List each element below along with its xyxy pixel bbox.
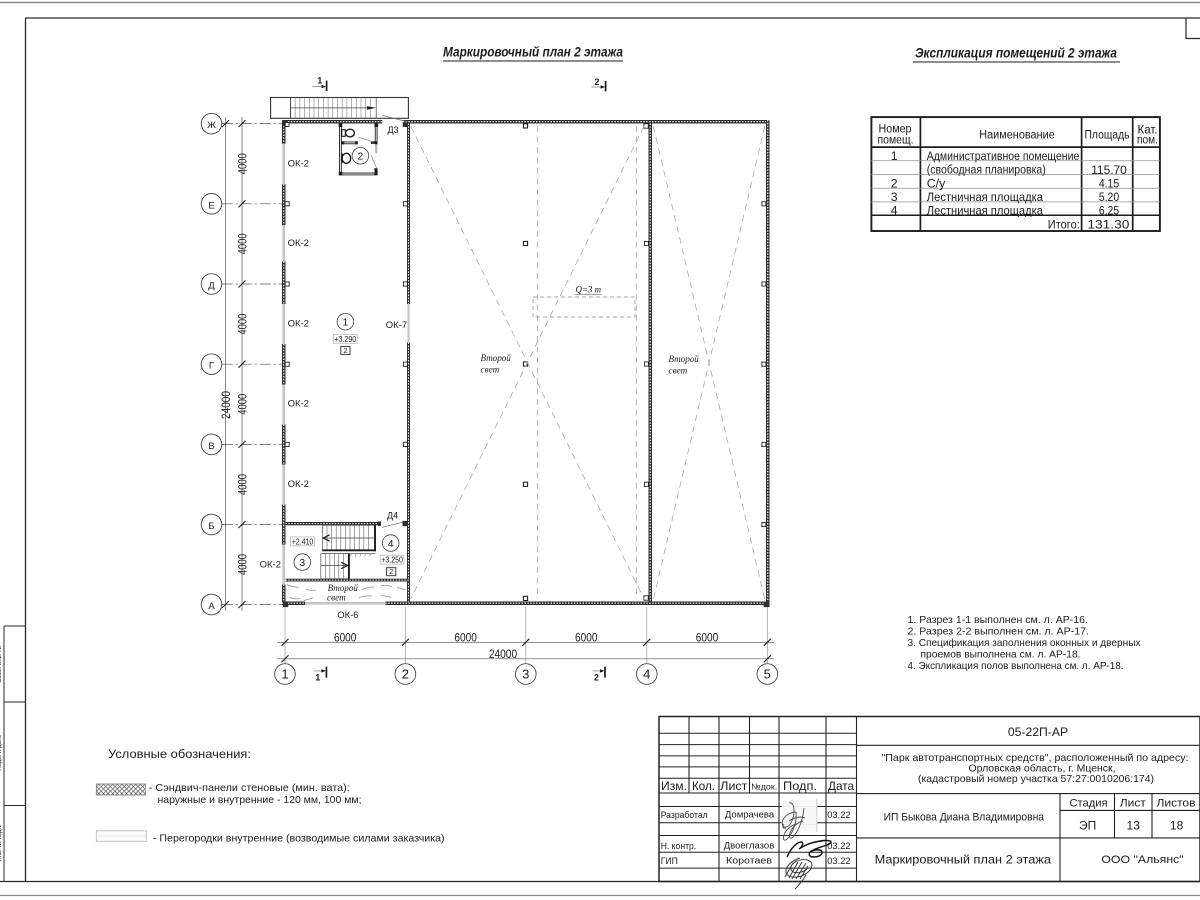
svg-text:ОК-6: ОК-6 — [337, 610, 358, 621]
svg-text:Лист: Лист — [1120, 798, 1146, 810]
svg-text:Площадь: Площадь — [1085, 128, 1130, 142]
svg-text:Разработал: Разработал — [661, 810, 708, 820]
svg-text:Лестничная площадка: Лестничная площадка — [927, 190, 1043, 204]
svg-text:Второй: Второй — [669, 354, 700, 364]
svg-text:Лист: Лист — [720, 779, 748, 793]
svg-text:ООО "Альянс": ООО "Альянс" — [1101, 854, 1183, 866]
svg-text:+3.290: +3.290 — [335, 335, 357, 344]
svg-text:03.22: 03.22 — [827, 856, 850, 866]
svg-text:13: 13 — [1127, 819, 1141, 833]
svg-text:Б: Б — [208, 521, 214, 532]
svg-text:(кадастровый номер участка 57:: (кадастровый номер участка 57:27:0010206… — [918, 774, 1154, 785]
svg-text:Е: Е — [208, 200, 214, 211]
svg-text:2: 2 — [891, 176, 898, 190]
svg-text:Листов: Листов — [1157, 798, 1196, 810]
svg-text:№док.: №док. — [751, 781, 777, 791]
svg-text:6000: 6000 — [334, 631, 357, 644]
svg-text:5: 5 — [764, 667, 771, 682]
svg-text:Орловская область, г. Мценск,: Орловская область, г. Мценск, — [969, 762, 1116, 774]
svg-text:2: 2 — [595, 77, 600, 87]
svg-text:4.15: 4.15 — [1099, 177, 1119, 191]
svg-text:1: 1 — [315, 673, 320, 683]
svg-text:Кол.: Кол. — [692, 779, 715, 793]
svg-text:ОК-2: ОК-2 — [288, 318, 309, 329]
svg-text:пом.: пом. — [1137, 132, 1158, 146]
svg-text:Д3: Д3 — [388, 125, 399, 135]
svg-text:3. Спецификация заполнения око: 3. Спецификация заполнения оконных и две… — [908, 637, 1142, 649]
svg-text:2: 2 — [594, 673, 599, 683]
svg-text:24000: 24000 — [220, 391, 233, 419]
svg-text:2. Разрез 2-2 выполнен см. л.: 2. Разрез 2-2 выполнен см. л. АР-17. — [908, 627, 1090, 638]
svg-text:4000: 4000 — [236, 474, 249, 495]
svg-text:Двоеглазов: Двоеглазов — [724, 840, 775, 851]
svg-text:6000: 6000 — [696, 631, 719, 644]
svg-text:2: 2 — [358, 152, 364, 163]
svg-text:Г: Г — [209, 361, 214, 372]
svg-text:проемов выполнена см. л. АР-18: проемов выполнена см. л. АР-18. — [921, 650, 1081, 661]
svg-text:ОК-7: ОК-7 — [386, 320, 407, 331]
svg-text:5.20: 5.20 — [1099, 190, 1119, 204]
svg-text:С/у: С/у — [927, 176, 946, 190]
svg-text:Инв. № подл.: Инв. № подл. — [0, 824, 3, 862]
svg-text:4000: 4000 — [236, 233, 249, 254]
svg-text:Подп.: Подп. — [783, 779, 817, 793]
svg-text:свет: свет — [669, 365, 688, 375]
svg-text:4000: 4000 — [236, 554, 249, 575]
svg-text:Ж: Ж — [207, 120, 216, 131]
svg-text:ОК-2: ОК-2 — [288, 158, 309, 169]
svg-text:Д4: Д4 — [387, 510, 398, 520]
svg-text:Второй: Второй — [481, 353, 512, 363]
svg-text:А: А — [208, 601, 215, 612]
svg-text:05-22П-АР: 05-22П-АР — [1008, 725, 1068, 739]
svg-text:6000: 6000 — [454, 631, 477, 644]
svg-text:Наименование: Наименование — [979, 128, 1055, 142]
svg-text:Лестничная площадка: Лестничная площадка — [927, 203, 1043, 217]
svg-text:ОК-2: ОК-2 — [288, 479, 309, 490]
svg-text:Экспликация помещений 2 этажа: Экспликация помещений 2 этажа — [915, 45, 1117, 60]
svg-text:Д: Д — [208, 281, 215, 292]
svg-text:ОК-2: ОК-2 — [288, 399, 309, 410]
svg-text:24000: 24000 — [489, 648, 517, 661]
svg-text:03.22: 03.22 — [827, 810, 850, 820]
svg-text:3: 3 — [522, 667, 529, 682]
svg-text:4: 4 — [891, 203, 898, 217]
svg-text:3: 3 — [891, 190, 898, 204]
svg-text:18: 18 — [1170, 819, 1184, 833]
svg-text:Домрачева: Домрачева — [725, 809, 775, 820]
svg-text:ГИП: ГИП — [661, 856, 678, 866]
svg-text:ОК-2: ОК-2 — [288, 238, 309, 249]
svg-text:ОК-2: ОК-2 — [260, 560, 281, 571]
svg-text:6.25: 6.25 — [1099, 204, 1119, 218]
svg-text:Коротаев: Коротаев — [726, 855, 772, 866]
svg-text:Взам. инв. №: Взам. инв. № — [0, 645, 3, 682]
svg-text:1: 1 — [343, 317, 349, 328]
svg-text:ИП Быкова Диана Владимировна: ИП Быкова Диана Владимировна — [884, 812, 1044, 824]
svg-text:1: 1 — [317, 76, 322, 86]
svg-text:2: 2 — [389, 567, 393, 576]
svg-text:2: 2 — [402, 667, 409, 682]
svg-text:Административное помещение: Административное помещение — [927, 149, 1080, 163]
svg-text:4: 4 — [388, 539, 394, 550]
svg-text:"Парк автотранспортных средств: "Парк автотранспортных средств", располо… — [882, 753, 1189, 764]
svg-text:3: 3 — [299, 558, 305, 569]
svg-text:ЭП: ЭП — [1079, 819, 1096, 833]
svg-text:Дата: Дата — [828, 779, 854, 793]
svg-text:1: 1 — [891, 149, 898, 163]
svg-text:4: 4 — [643, 667, 650, 682]
svg-text:свет: свет — [327, 593, 346, 603]
svg-text:Маркировочный план 2 этажа: Маркировочный план 2 этажа — [875, 853, 1052, 867]
svg-text:Подп. и дата: Подп. и дата — [0, 735, 3, 771]
svg-text:Итого:: Итого: — [1048, 217, 1080, 231]
svg-text:помещ.: помещ. — [878, 133, 914, 147]
svg-text:115.70: 115.70 — [1091, 163, 1127, 177]
svg-text:+2.410: +2.410 — [292, 537, 314, 546]
svg-text:4000: 4000 — [236, 153, 249, 174]
svg-text:4000: 4000 — [236, 314, 249, 335]
svg-text:Маркировочный план 2 этажа: Маркировочный план 2 этажа — [443, 44, 623, 59]
svg-text:6000: 6000 — [575, 631, 598, 644]
svg-text:свет: свет — [481, 364, 500, 374]
svg-text:Условные обозначения:: Условные обозначения: — [108, 747, 251, 761]
svg-text:4. Экспликация полов выполнена: 4. Экспликация полов выполнена см. л. АР… — [908, 661, 1124, 672]
svg-text:Н. контр.: Н. контр. — [661, 841, 697, 851]
svg-text:Стадия: Стадия — [1070, 798, 1108, 810]
svg-text:4000: 4000 — [236, 394, 249, 415]
svg-text:2: 2 — [343, 346, 347, 355]
svg-text:Q=3 т: Q=3 т — [576, 285, 602, 295]
svg-text:Второй: Второй — [328, 583, 359, 593]
svg-text:+3.250: +3.250 — [381, 556, 403, 565]
svg-text:- Сэндвич-панели стеновые (мин: - Сэндвич-панели стеновые (мин. вата): — [149, 783, 350, 794]
svg-text:1. Разрез 1-1 выполнен см. л.: 1. Разрез 1-1 выполнен см. л. АР-16. — [908, 615, 1089, 626]
svg-text:- Перегородки внутренние (возв: - Перегородки внутренние (возводимые сил… — [153, 833, 445, 844]
svg-text:131.30: 131.30 — [1087, 217, 1129, 231]
svg-text:1: 1 — [281, 667, 288, 682]
svg-text:В: В — [208, 441, 214, 452]
svg-text:(свободная планировка): (свободная планировка) — [927, 163, 1046, 177]
svg-text:Изм.: Изм. — [661, 779, 687, 793]
svg-text:наружные и внутренние - 120 мм: наружные и внутренние - 120 мм, 100 мм; — [158, 795, 362, 806]
